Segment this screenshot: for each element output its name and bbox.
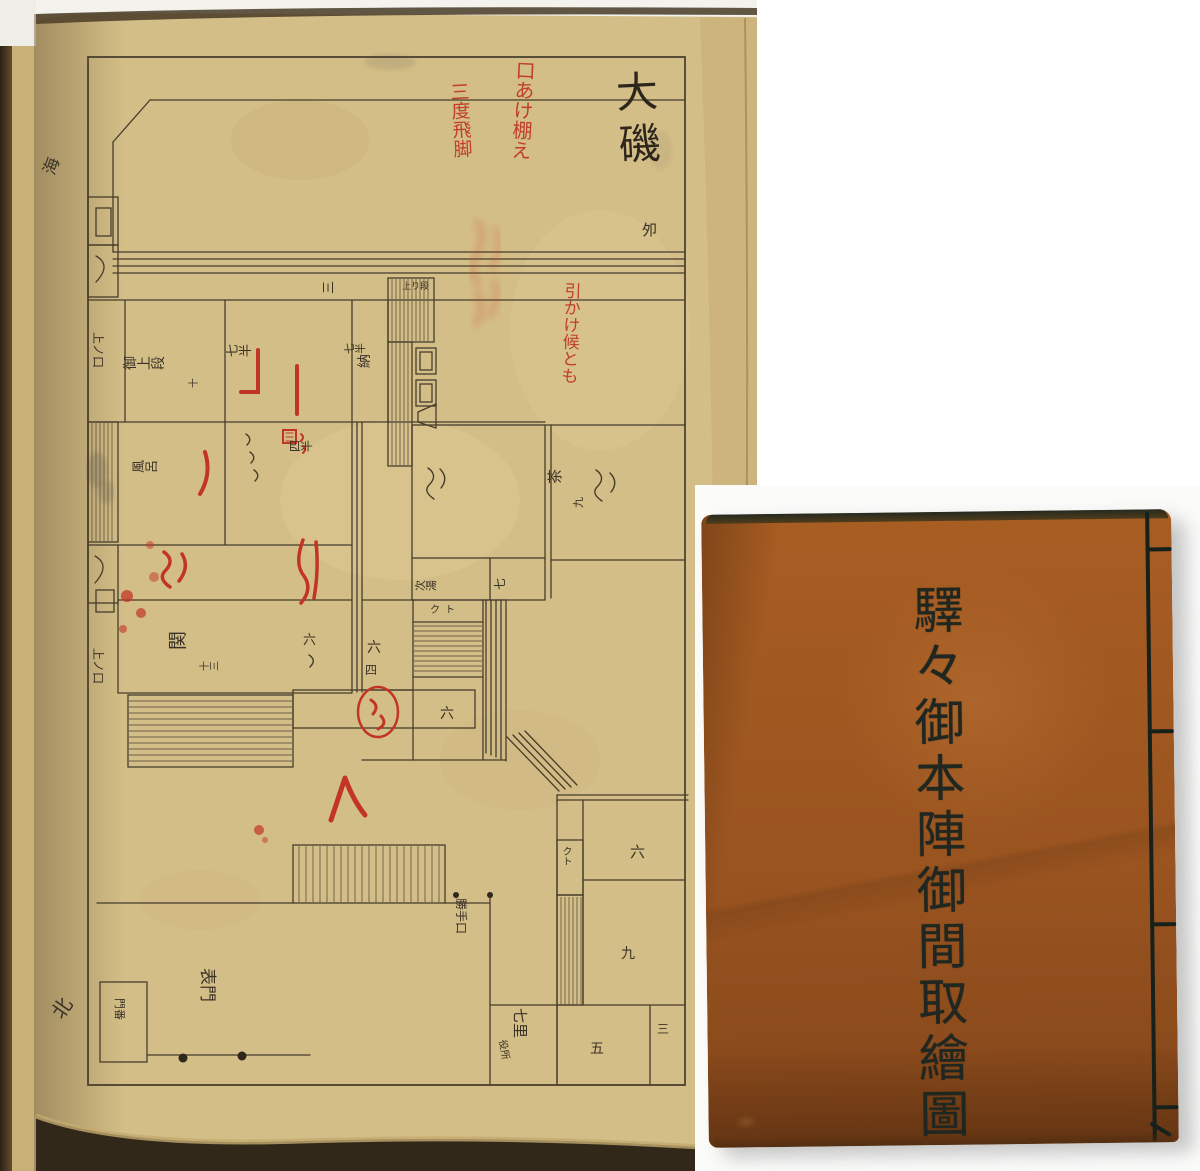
- yakusho-label: 役所: [496, 1039, 509, 1060]
- kuto-b-label: クト: [560, 846, 570, 866]
- kamidan-label: 御上段: [123, 356, 167, 370]
- binding-stitch-4: [1152, 1105, 1178, 1109]
- roku-a-label: 六: [367, 640, 381, 656]
- genkan-mats-label: 十三: [198, 661, 221, 671]
- cha-mats-label: 九: [572, 497, 585, 508]
- book-cover: 驛々御本陣御間取繪圖: [701, 509, 1179, 1148]
- cha-label: 茶: [546, 469, 564, 484]
- katteguchi-label: 勝手口: [455, 898, 467, 934]
- go-label: 五: [590, 1041, 604, 1057]
- shichi-label: 七: [493, 578, 507, 590]
- shichihan-b-label: 七半: [343, 343, 367, 354]
- hatch-fence: [299, 846, 439, 902]
- binding-stitch-3: [1150, 922, 1176, 926]
- shichihan-a-label: 七半: [226, 344, 254, 357]
- agaridan-label: 上り段: [402, 280, 429, 292]
- red-note-c: 引かけ候とも: [558, 282, 579, 385]
- furo-label: 風呂: [132, 460, 160, 473]
- yonhan-label: 四半: [288, 440, 314, 452]
- book-title: 驛々御本陣御間取繪圖: [898, 584, 977, 1155]
- floor-plan-drawing: 三 上り段 御上段 十 七半 七半 納 風呂 四半 茶 九 次湯 七 関 十三 …: [0, 0, 757, 1171]
- shichiri-label: 七里: [512, 1008, 527, 1038]
- genkan-label: 関: [167, 631, 189, 650]
- monban-label: 門番: [114, 998, 125, 1020]
- binding-thread-vertical: [1145, 511, 1157, 1141]
- ue-no-kuchi-b-label: 上ノ口: [92, 648, 104, 684]
- roku-c-label: 六: [630, 843, 645, 861]
- photo-collage: 三 上り段 御上段 十 七半 七半 納 風呂 四半 茶 九 次湯 七 関 十三 …: [0, 0, 1200, 1171]
- roku-b-label: 六: [440, 706, 454, 722]
- page-place-name: 大磯: [611, 69, 658, 175]
- tsugiyu-label: 次湯: [413, 580, 438, 591]
- ue-no-kuchi-a-label: 上ノ口: [92, 332, 104, 368]
- san-label: 三: [657, 1022, 669, 1036]
- red-note-b: 三度飛脚: [448, 82, 471, 159]
- book-cover-photo: 驛々御本陣御間取繪圖: [695, 485, 1200, 1171]
- yon-label: 四: [365, 663, 377, 677]
- roku-d-label: 六: [303, 633, 316, 648]
- omote-mon-label: 表門: [198, 968, 215, 1002]
- binding-stitch-1: [1146, 547, 1172, 551]
- kyu-label: 九: [621, 946, 635, 962]
- veranda-mats-label: 三: [322, 281, 337, 294]
- floor-plan-photo: 三 上り段 御上段 十 七半 七半 納 風呂 四半 茶 九 次湯 七 関 十三 …: [0, 0, 757, 1171]
- collector-seal-mark: 夘: [641, 222, 656, 237]
- binding-stitch-2: [1148, 729, 1174, 733]
- kuto-a-label: クト: [430, 606, 460, 616]
- osame-label: 納: [357, 354, 373, 368]
- red-note-a: 口あけ棚え: [509, 60, 534, 161]
